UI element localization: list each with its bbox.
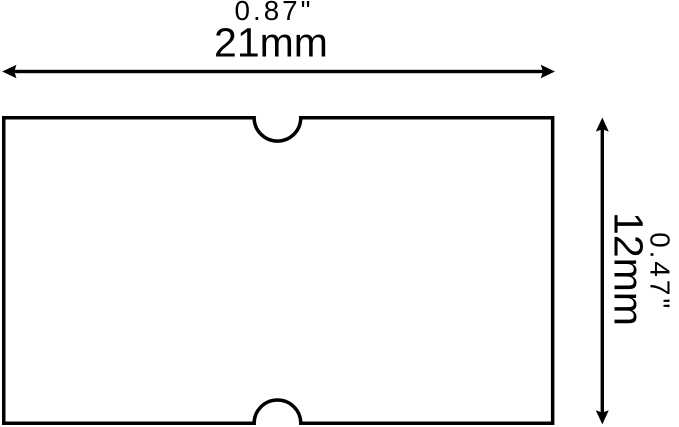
svg-text:0.47": 0.47" (645, 232, 676, 311)
svg-text:21mm: 21mm (214, 20, 328, 66)
